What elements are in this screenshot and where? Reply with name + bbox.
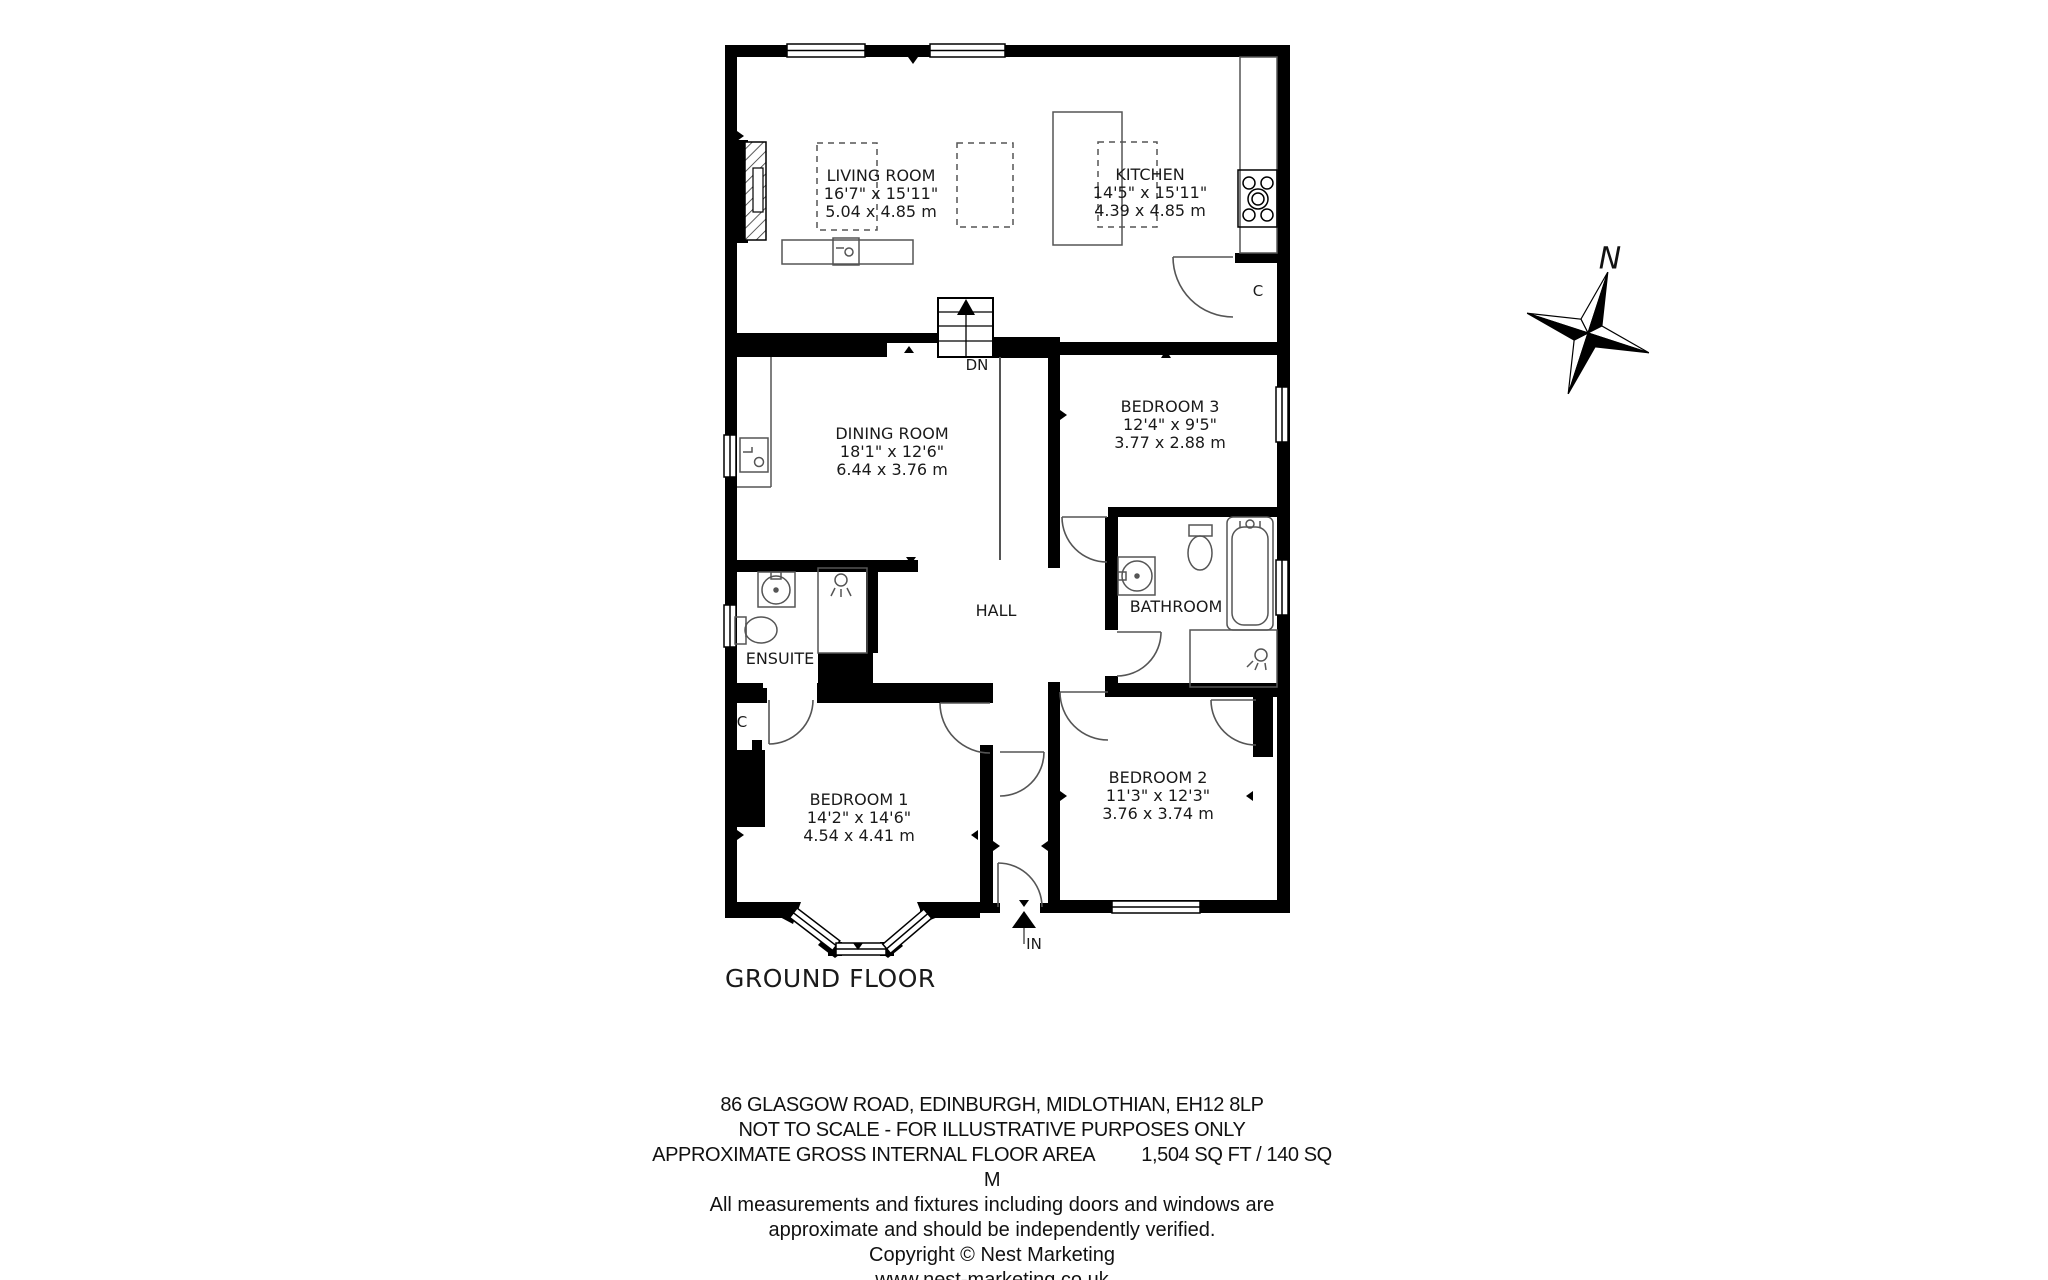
cupboard-label-bedroom1: C xyxy=(737,713,747,731)
counter-strip xyxy=(782,240,913,264)
ensuite-basin-icon xyxy=(758,572,795,607)
window-ensuite-left xyxy=(724,605,736,647)
fixtures xyxy=(735,57,1277,687)
footer-area-line: APPROXIMATE GROSS INTERNAL FLOOR AREA1,5… xyxy=(652,1143,1332,1193)
window-bedroom2-bottom xyxy=(1112,901,1200,913)
dining-room-metric: 6.44 x 3.76 m xyxy=(835,461,948,479)
bathroom-name: BATHROOM xyxy=(1130,598,1223,616)
floor-title: GROUND FLOOR xyxy=(725,964,936,993)
bathroom-label: BATHROOM xyxy=(1130,598,1223,616)
ensuite-label: ENSUITE xyxy=(746,650,815,668)
footer-area-label: APPROXIMATE GROSS INTERNAL FLOOR AREA xyxy=(652,1144,1095,1166)
dining-room-label: DINING ROOM 18'1" x 12'6" 6.44 x 3.76 m xyxy=(835,425,948,479)
window-bathroom-right xyxy=(1276,560,1288,615)
bedroom3-name: BEDROOM 3 xyxy=(1114,398,1226,416)
compass-icon xyxy=(1507,252,1668,413)
kitchen-metric: 4.39 x 4.85 m xyxy=(1093,202,1207,220)
dining-nook xyxy=(737,357,771,487)
window-bedroom3-right xyxy=(1276,387,1288,442)
living-room-metric: 5.04 x 4.85 m xyxy=(824,203,938,221)
ensuite-name: ENSUITE xyxy=(746,650,815,668)
footer-measurements-note-1: All measurements and fixtures including … xyxy=(652,1193,1332,1218)
compass-north-label: N xyxy=(1599,242,1621,277)
bedroom1-label: BEDROOM 1 14'2" x 14'6" 4.54 x 4.41 m xyxy=(803,791,915,845)
footer: 86 GLASGOW ROAD, EDINBURGH, MIDLOTHIAN, … xyxy=(652,1093,1332,1280)
door-vestibule xyxy=(1000,752,1044,796)
hall-name: HALL xyxy=(976,602,1017,620)
window-dining-left xyxy=(724,435,736,477)
living-room-name: LIVING ROOM xyxy=(824,167,938,185)
bedroom3-label: BEDROOM 3 12'4" x 9'5" 3.77 x 2.88 m xyxy=(1114,398,1226,452)
kitchen-counter xyxy=(1240,57,1277,253)
kitchen-name: KITCHEN xyxy=(1093,166,1207,184)
door-closet-bedroom1 xyxy=(769,700,813,744)
footer-website: www.nest-marketing.co.uk xyxy=(652,1268,1332,1280)
footer-measurements-note-2: approximate and should be independently … xyxy=(652,1218,1332,1243)
window-kitchen-top xyxy=(930,44,1005,57)
door-bedroom2 xyxy=(1060,692,1108,740)
bedroom2-imperial: 11'3" x 12'3" xyxy=(1102,787,1214,805)
footer-address: 86 GLASGOW ROAD, EDINBURGH, MIDLOTHIAN, … xyxy=(652,1093,1332,1118)
footer-copyright: Copyright © Nest Marketing xyxy=(652,1243,1332,1268)
bedroom2-label: BEDROOM 2 11'3" x 12'3" 3.76 x 3.74 m xyxy=(1102,769,1214,823)
fireplace-chimney xyxy=(745,142,766,240)
bathroom-shower-icon xyxy=(1190,630,1277,687)
bedroom2-name: BEDROOM 2 xyxy=(1102,769,1214,787)
door-bathroom xyxy=(1117,632,1161,676)
window-living-top xyxy=(787,44,865,57)
dining-room-imperial: 18'1" x 12'6" xyxy=(835,443,948,461)
bedroom3-imperial: 12'4" x 9'5" xyxy=(1114,416,1226,434)
skylight-2 xyxy=(957,143,1013,227)
bedroom3-metric: 3.77 x 2.88 m xyxy=(1114,434,1226,452)
bedroom1-metric: 4.54 x 4.41 m xyxy=(803,827,915,845)
entrance-in-label: IN xyxy=(1026,935,1042,953)
floorplan-page: LIVING ROOM 16'7" x 15'11" 5.04 x 4.85 m… xyxy=(0,0,2048,1280)
sink-counter-icon xyxy=(833,238,859,265)
dining-room-name: DINING ROOM xyxy=(835,425,948,443)
ensuite-toilet-icon xyxy=(735,617,777,644)
stairs xyxy=(938,298,993,357)
bay-window-right xyxy=(883,909,932,953)
sink-dining-icon xyxy=(740,438,768,472)
bedroom2-metric: 3.76 x 3.74 m xyxy=(1102,805,1214,823)
stairs-dn-label: DN xyxy=(966,356,989,374)
kitchen-imperial: 14'5" x 15'11" xyxy=(1093,184,1207,202)
door-bedroom2-cupboard xyxy=(1211,700,1256,745)
bay-window-left xyxy=(790,908,840,950)
door-kitchen xyxy=(1173,257,1233,317)
ensuite-shower-icon xyxy=(818,568,867,653)
cupboard-label-kitchen: C xyxy=(1253,282,1263,300)
living-room-label: LIVING ROOM 16'7" x 15'11" 5.04 x 4.85 m xyxy=(824,167,938,221)
living-room-imperial: 16'7" x 15'11" xyxy=(824,185,938,203)
kitchen-label: KITCHEN 14'5" x 15'11" 4.39 x 4.85 m xyxy=(1093,166,1207,220)
hall-label: HALL xyxy=(976,602,1017,620)
footer-scale-note: NOT TO SCALE - FOR ILLUSTRATIVE PURPOSES… xyxy=(652,1118,1332,1143)
bathtub-icon xyxy=(1227,517,1273,630)
door-bedroom3 xyxy=(1062,517,1107,562)
bedroom1-imperial: 14'2" x 14'6" xyxy=(803,809,915,827)
floorplan-drawing xyxy=(0,0,2048,1280)
bathroom-toilet-icon xyxy=(1188,525,1212,570)
hob-icon xyxy=(1238,170,1277,227)
bedroom1-name: BEDROOM 1 xyxy=(803,791,915,809)
bathroom-basin-icon xyxy=(1118,557,1155,595)
